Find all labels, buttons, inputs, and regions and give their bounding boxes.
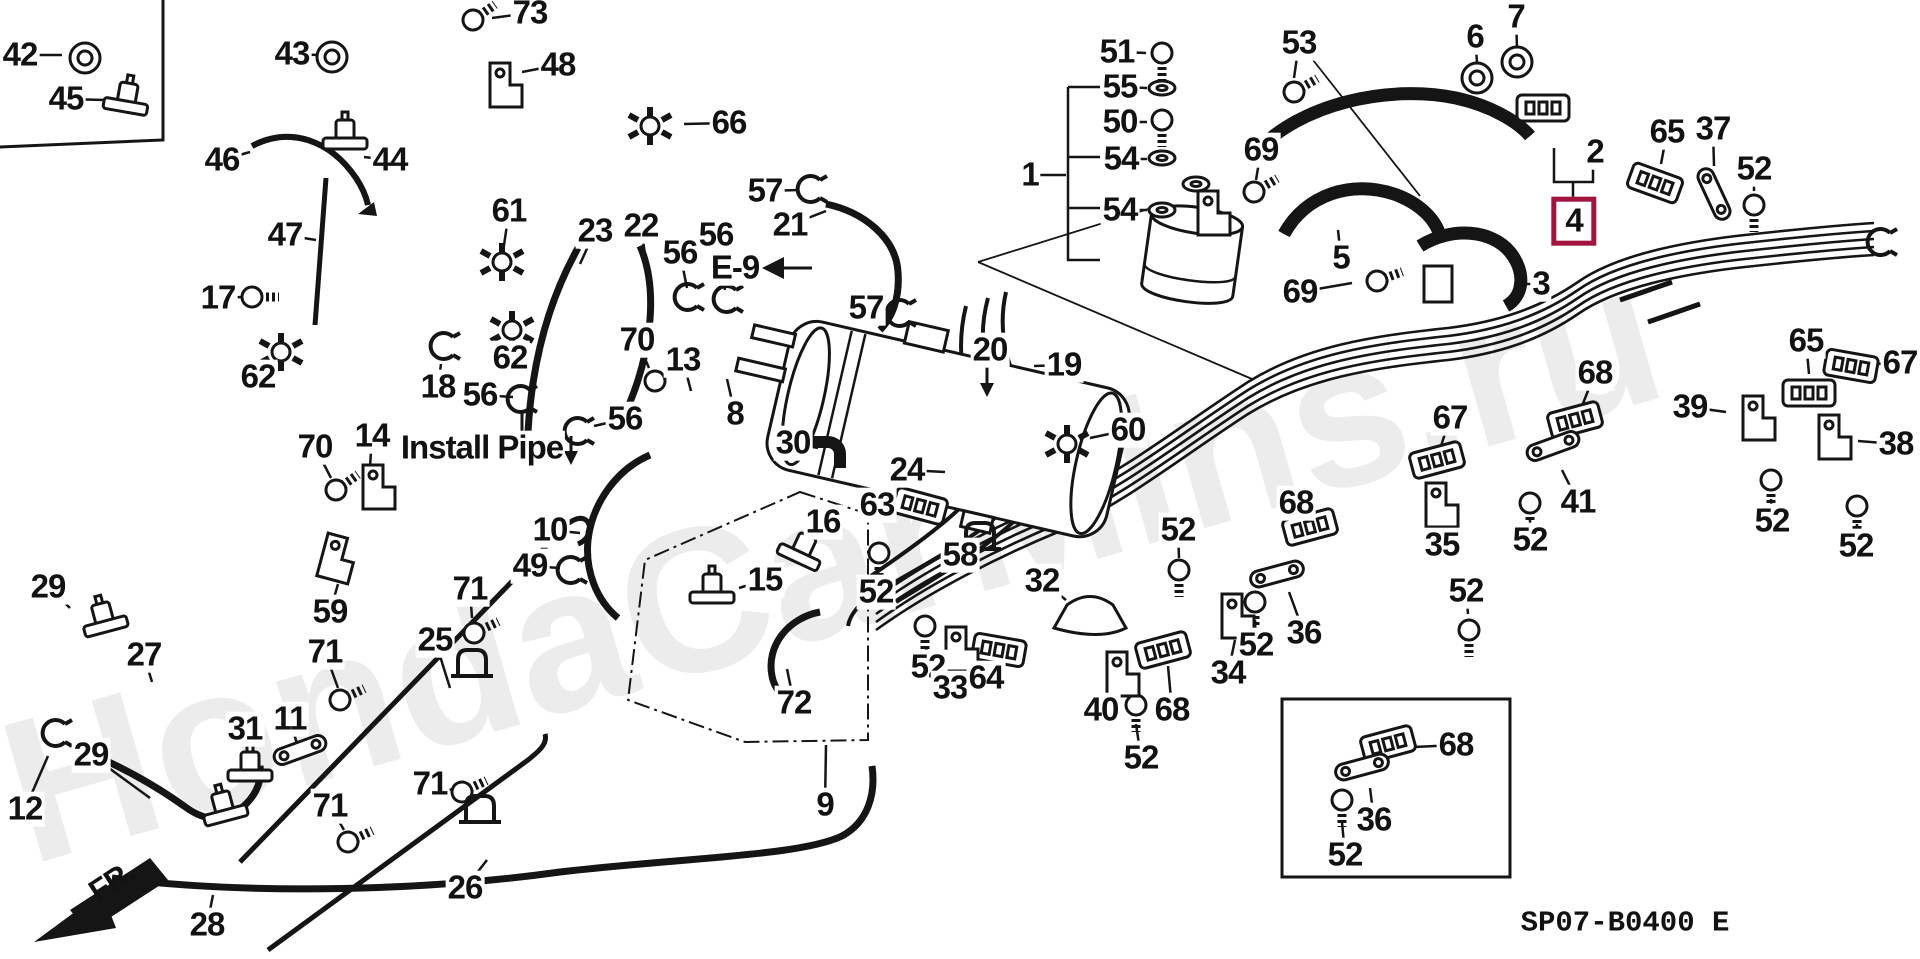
part-label-69[interactable]: 69 <box>1242 133 1281 168</box>
part-label-12[interactable]: 12 <box>6 792 45 827</box>
part-label-56[interactable]: 56 <box>697 218 736 253</box>
part-label-52[interactable]: 52 <box>1753 504 1792 539</box>
part-label-41[interactable]: 41 <box>1559 485 1598 520</box>
part-label-54[interactable]: 54 <box>1101 193 1140 228</box>
part-labels: 4245437348444647176661232256565721E-9576… <box>0 0 1920 959</box>
part-label-68[interactable]: 68 <box>1576 356 1615 391</box>
part-label-61[interactable]: 61 <box>490 194 529 229</box>
part-label-23[interactable]: 23 <box>576 214 615 249</box>
part-label-1[interactable]: 1 <box>1019 158 1040 193</box>
part-label-27[interactable]: 27 <box>125 638 164 673</box>
part-label-56[interactable]: 56 <box>461 378 500 413</box>
part-label-71[interactable]: 71 <box>306 635 345 670</box>
part-label-45[interactable]: 45 <box>47 82 86 117</box>
part-label-30[interactable]: 30 <box>774 426 813 461</box>
diagram-code: SP07-B0400 E <box>1519 907 1732 940</box>
front-direction-label: FR. <box>82 854 142 909</box>
part-label-38[interactable]: 38 <box>1877 427 1916 462</box>
part-label-18[interactable]: 18 <box>419 370 458 405</box>
part-label-22[interactable]: 22 <box>622 209 661 244</box>
part-label-5[interactable]: 5 <box>1330 241 1351 276</box>
part-label-63[interactable]: 63 <box>858 488 897 523</box>
part-label-56[interactable]: 56 <box>606 402 645 437</box>
part-label-2[interactable]: 2 <box>1584 135 1605 170</box>
part-label-34[interactable]: 34 <box>1209 656 1248 691</box>
part-label-10[interactable]: 10 <box>531 513 570 548</box>
part-label-59[interactable]: 59 <box>311 595 350 630</box>
part-label-52[interactable]: 52 <box>1447 574 1486 609</box>
part-label-42[interactable]: 42 <box>1 38 40 73</box>
part-label-50[interactable]: 50 <box>1101 105 1140 140</box>
part-label-52[interactable]: 52 <box>1511 523 1550 558</box>
part-label-71[interactable]: 71 <box>311 789 350 824</box>
part-label-33[interactable]: 33 <box>931 671 970 706</box>
part-label-36[interactable]: 36 <box>1285 616 1324 651</box>
part-label-52[interactable]: 52 <box>1159 513 1198 548</box>
part-label-32[interactable]: 32 <box>1023 564 1062 599</box>
part-label-44[interactable]: 44 <box>371 143 410 178</box>
part-label-14[interactable]: 14 <box>353 419 392 454</box>
part-label-16[interactable]: 16 <box>804 505 843 540</box>
part-label-52[interactable]: 52 <box>1122 741 1161 776</box>
part-label-71[interactable]: 71 <box>451 572 490 607</box>
part-label-28[interactable]: 28 <box>188 908 227 943</box>
part-label-52[interactable]: 52 <box>1735 152 1774 187</box>
part-label-60[interactable]: 60 <box>1109 413 1148 448</box>
part-label-4-highlighted[interactable]: 4 <box>1551 197 1596 246</box>
part-label-20[interactable]: 20 <box>971 333 1010 368</box>
part-label-15[interactable]: 15 <box>746 563 785 598</box>
part-label-24[interactable]: 24 <box>888 453 927 488</box>
part-label-72[interactable]: 72 <box>775 686 814 721</box>
part-label-13[interactable]: 13 <box>664 343 703 378</box>
part-label-68[interactable]: 68 <box>1437 728 1476 763</box>
part-label-67[interactable]: 67 <box>1881 346 1920 381</box>
part-label-25[interactable]: 25 <box>416 623 455 658</box>
part-label-17[interactable]: 17 <box>199 281 238 316</box>
part-label-3[interactable]: 3 <box>1530 267 1551 302</box>
part-label-37[interactable]: 37 <box>1694 112 1733 147</box>
part-label-29[interactable]: 29 <box>29 570 68 605</box>
part-label-21[interactable]: 21 <box>771 208 810 243</box>
part-label-52[interactable]: 52 <box>1837 529 1876 564</box>
part-label-9[interactable]: 9 <box>814 788 835 823</box>
part-label-47[interactable]: 47 <box>266 218 305 253</box>
install-pipe-note: Install Pipe <box>399 431 565 466</box>
part-label-56[interactable]: 56 <box>661 236 700 271</box>
part-label-19[interactable]: 19 <box>1045 348 1084 383</box>
part-label-66[interactable]: 66 <box>710 106 749 141</box>
part-label-70[interactable]: 70 <box>296 430 335 465</box>
part-label-39[interactable]: 39 <box>1671 390 1710 425</box>
part-label-70[interactable]: 70 <box>618 323 657 358</box>
part-label-26[interactable]: 26 <box>446 871 485 906</box>
part-label-e-9[interactable]: E-9 <box>709 251 761 286</box>
part-label-7[interactable]: 7 <box>1505 0 1526 34</box>
parts-diagram-canvas: HondaCarMins.ru <box>0 0 1920 959</box>
part-label-49[interactable]: 49 <box>511 549 550 584</box>
part-label-73[interactable]: 73 <box>511 0 550 30</box>
part-label-62[interactable]: 62 <box>491 341 530 376</box>
part-label-8[interactable]: 8 <box>724 397 745 432</box>
part-label-67[interactable]: 67 <box>1431 401 1470 436</box>
part-label-51[interactable]: 51 <box>1098 35 1137 70</box>
part-label-65[interactable]: 65 <box>1787 324 1826 359</box>
part-label-40[interactable]: 40 <box>1082 693 1121 728</box>
part-label-46[interactable]: 46 <box>203 143 242 178</box>
part-label-52[interactable]: 52 <box>1326 838 1365 873</box>
part-label-69[interactable]: 69 <box>1281 275 1320 310</box>
part-label-31[interactable]: 31 <box>226 712 265 747</box>
part-label-43[interactable]: 43 <box>273 37 312 72</box>
part-label-11[interactable]: 11 <box>272 702 309 737</box>
part-label-62[interactable]: 62 <box>239 360 278 395</box>
part-label-68[interactable]: 68 <box>1277 486 1316 521</box>
part-label-71[interactable]: 71 <box>411 767 450 802</box>
part-label-29[interactable]: 29 <box>72 738 111 773</box>
part-label-58[interactable]: 58 <box>941 538 980 573</box>
part-label-57[interactable]: 57 <box>746 174 785 209</box>
part-label-54[interactable]: 54 <box>1102 142 1141 177</box>
part-label-35[interactable]: 35 <box>1423 528 1462 563</box>
part-label-65[interactable]: 65 <box>1648 115 1687 150</box>
part-label-53[interactable]: 53 <box>1280 26 1319 61</box>
part-label-55[interactable]: 55 <box>1101 70 1140 105</box>
part-label-64[interactable]: 64 <box>967 661 1006 696</box>
part-label-48[interactable]: 48 <box>539 48 578 83</box>
part-label-57[interactable]: 57 <box>847 291 886 326</box>
part-label-36[interactable]: 36 <box>1355 803 1394 838</box>
part-label-6[interactable]: 6 <box>1464 20 1485 55</box>
part-label-52[interactable]: 52 <box>857 575 896 610</box>
part-label-68[interactable]: 68 <box>1153 693 1192 728</box>
